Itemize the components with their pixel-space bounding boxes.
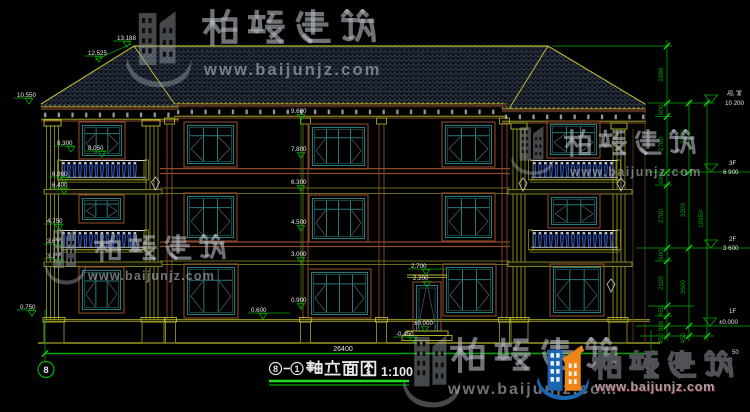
svg-text:10650: 10650 xyxy=(698,210,705,228)
svg-text:6.300: 6.300 xyxy=(291,179,307,186)
svg-text:www.baijunjz.com: www.baijunjz.com xyxy=(594,379,715,394)
svg-text:600: 600 xyxy=(658,249,665,260)
svg-text:1: 1 xyxy=(294,364,299,374)
svg-text:9.680: 9.680 xyxy=(291,108,307,115)
svg-text:2700: 2700 xyxy=(658,136,665,151)
svg-text:www.baijunjz.com: www.baijunjz.com xyxy=(87,269,215,283)
svg-text:2F: 2F xyxy=(729,236,736,243)
svg-text:3300: 3300 xyxy=(680,202,687,217)
svg-text:2100: 2100 xyxy=(658,275,665,290)
svg-text:2700: 2700 xyxy=(658,208,665,223)
svg-text:1F: 1F xyxy=(729,308,736,315)
svg-text:7.800: 7.800 xyxy=(291,146,307,153)
svg-text:50: 50 xyxy=(732,350,739,356)
svg-text:2.200: 2.200 xyxy=(413,275,429,282)
svg-text:±0.000: ±0.000 xyxy=(414,320,433,327)
svg-text:3 600: 3 600 xyxy=(723,245,739,252)
svg-text:450: 450 xyxy=(658,305,665,316)
svg-text:1:100: 1:100 xyxy=(381,365,413,379)
svg-text:900: 900 xyxy=(658,320,665,331)
svg-text:±0.000: ±0.000 xyxy=(719,319,738,326)
svg-text:450: 450 xyxy=(658,333,665,344)
svg-text:10 200: 10 200 xyxy=(725,100,744,107)
svg-text:3F: 3F xyxy=(729,160,736,167)
svg-text:4.500: 4.500 xyxy=(291,219,307,226)
svg-text:www.baijunjz.com: www.baijunjz.com xyxy=(447,381,618,398)
svg-text:3600: 3600 xyxy=(680,279,687,294)
svg-text:6 900: 6 900 xyxy=(723,169,739,176)
svg-text:8: 8 xyxy=(43,365,48,376)
svg-text:2988: 2988 xyxy=(658,67,665,82)
svg-text:www.baijunjz.com: www.baijunjz.com xyxy=(569,165,702,179)
svg-text:www.baijunjz.com: www.baijunjz.com xyxy=(203,61,382,79)
svg-text:8: 8 xyxy=(273,364,278,374)
svg-text:450: 450 xyxy=(680,332,687,343)
svg-text:0.900: 0.900 xyxy=(291,297,307,304)
svg-text:600: 600 xyxy=(658,104,665,115)
svg-text:26400: 26400 xyxy=(333,346,353,353)
svg-text:3.000: 3.000 xyxy=(291,251,307,258)
